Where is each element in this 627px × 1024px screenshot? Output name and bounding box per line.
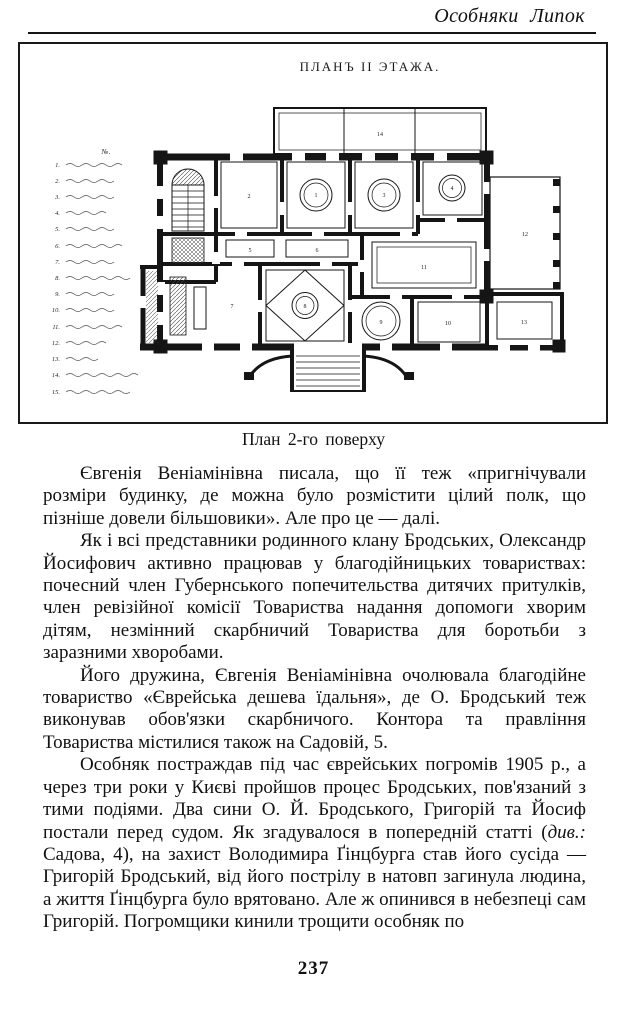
svg-text:5.: 5.: [55, 226, 60, 233]
svg-text:15.: 15.: [52, 389, 61, 396]
plan-corridor: 5 6: [226, 240, 348, 257]
legend-item: 8.: [55, 275, 130, 282]
page-number: 237: [0, 958, 627, 980]
svg-text:3: 3: [383, 193, 386, 199]
svg-text:8.: 8.: [55, 275, 60, 282]
legend-item: 3.: [54, 194, 114, 201]
svg-text:2: 2: [248, 194, 251, 200]
paragraph-4: Особняк постраждав під час єврейських по…: [43, 754, 586, 933]
svg-text:2.: 2.: [55, 178, 60, 185]
svg-text:6: 6: [316, 248, 319, 254]
paragraph-2: Як і всі представники родинного клану Бр…: [43, 530, 586, 664]
svg-text:6.: 6.: [55, 243, 60, 250]
svg-text:11: 11: [421, 265, 427, 271]
floor-plan-drawing: ПЛАНЪ II ЭТАЖА. №. 1. 2. 3. 4.: [20, 44, 606, 422]
plan-hall: 11: [372, 242, 476, 288]
floor-plan-figure: ПЛАНЪ II ЭТАЖА. №. 1. 2. 3. 4.: [18, 42, 608, 424]
svg-text:11.: 11.: [52, 324, 60, 331]
plan-legend: №. 1. 2. 3. 4. 5.: [52, 147, 138, 396]
book-page: Особняки Липок ПЛАНЪ II ЭТАЖА. №. 1.: [0, 0, 627, 1024]
legend-item: 2.: [55, 178, 114, 185]
legend-item: 12.: [52, 340, 106, 347]
legend-item: 10.: [52, 307, 114, 314]
svg-text:12.: 12.: [52, 340, 61, 347]
paragraph-3: Його дружина, Євгенія Веніамінівна очолю…: [43, 665, 586, 755]
svg-text:5: 5: [249, 248, 252, 254]
plan-title: ПЛАНЪ II ЭТАЖА.: [300, 59, 441, 74]
svg-text:3.: 3.: [54, 194, 60, 201]
legend-item: 4.: [55, 210, 106, 217]
figure-caption: План 2-го поверху: [0, 429, 627, 450]
plan-porch: [244, 347, 414, 391]
legend-item: 11.: [52, 324, 122, 331]
svg-text:1: 1: [315, 193, 318, 199]
plan-staircase: 15: [163, 169, 204, 264]
svg-text:13.: 13.: [52, 356, 61, 363]
svg-text:10.: 10.: [52, 307, 61, 314]
plan-terrace: 14: [274, 108, 486, 154]
legend-item: 9.: [55, 291, 114, 298]
article-body: Євгенія Веніамінівна писала, що її теж «…: [43, 463, 586, 934]
legend-item: 5.: [55, 226, 114, 233]
legend-heading: №.: [101, 147, 111, 156]
svg-text:7: 7: [231, 304, 234, 310]
legend-item: 13.: [52, 356, 98, 363]
svg-text:8: 8: [304, 304, 307, 310]
paragraph-4-text: Особняк постраждав під час єврейських по…: [43, 754, 586, 842]
legend-item: 6.: [55, 243, 122, 250]
legend-item: 7.: [55, 259, 114, 266]
svg-text:4.: 4.: [55, 210, 60, 217]
svg-text:9.: 9.: [55, 291, 60, 298]
svg-text:14: 14: [377, 132, 383, 138]
svg-text:15: 15: [163, 232, 169, 238]
svg-text:12: 12: [522, 232, 528, 238]
running-header: Особняки Липок: [434, 5, 585, 28]
paragraph-4-italic: див.:: [548, 822, 586, 843]
svg-text:1.: 1.: [55, 162, 60, 169]
svg-text:7.: 7.: [55, 259, 60, 266]
svg-text:9: 9: [380, 320, 383, 326]
svg-text:14.: 14.: [52, 372, 61, 379]
legend-item: 14.: [52, 372, 138, 379]
svg-text:13: 13: [521, 320, 527, 326]
svg-text:4: 4: [451, 186, 454, 192]
paragraph-4-text-cont: Садова, 4), на захист Володимира Ґінцбур…: [43, 844, 586, 932]
plan-veranda: 12: [490, 177, 560, 289]
legend-item: 15.: [52, 389, 130, 396]
plan-annex-room: [146, 271, 158, 343]
svg-text:10: 10: [445, 321, 451, 327]
legend-item: 1.: [55, 162, 122, 169]
paragraph-1: Євгенія Веніамінівна писала, що її теж «…: [43, 463, 586, 530]
header-title: Особняки Липок: [434, 5, 585, 27]
header-rule: [28, 32, 596, 34]
